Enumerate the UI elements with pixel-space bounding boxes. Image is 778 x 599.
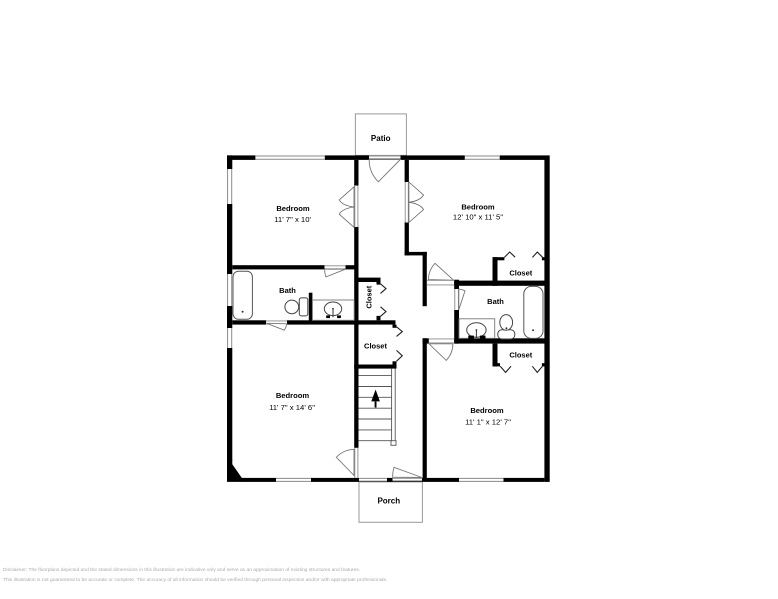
svg-text:Closet: Closet	[509, 268, 532, 277]
svg-text:Closet: Closet	[509, 350, 532, 359]
svg-text:Bedroom: Bedroom	[276, 204, 310, 213]
svg-text:This illustration is not guara: This illustration is not guaranteed to b…	[3, 577, 387, 583]
svg-text:Bath: Bath	[279, 286, 296, 295]
svg-text:Bath: Bath	[487, 297, 504, 306]
svg-text:Closet: Closet	[365, 285, 374, 308]
svg-text:11' 7" x 14' 6": 11' 7" x 14' 6"	[269, 403, 315, 412]
svg-text:Bedroom: Bedroom	[470, 406, 504, 415]
svg-text:Closet: Closet	[364, 342, 387, 351]
svg-text:Bedroom: Bedroom	[461, 202, 495, 211]
svg-text:Disclaimer: The floorplans dep: Disclaimer: The floorplans depicted and …	[3, 567, 360, 573]
svg-text:11' 1" x 12' 7": 11' 1" x 12' 7"	[465, 418, 511, 427]
svg-text:12' 10" x 11' 5": 12' 10" x 11' 5"	[453, 213, 503, 222]
svg-text:Porch: Porch	[377, 496, 400, 505]
svg-text:Bedroom: Bedroom	[276, 391, 310, 400]
svg-text:Patio: Patio	[371, 134, 391, 143]
svg-text:11' 7" x 10': 11' 7" x 10'	[274, 215, 311, 224]
